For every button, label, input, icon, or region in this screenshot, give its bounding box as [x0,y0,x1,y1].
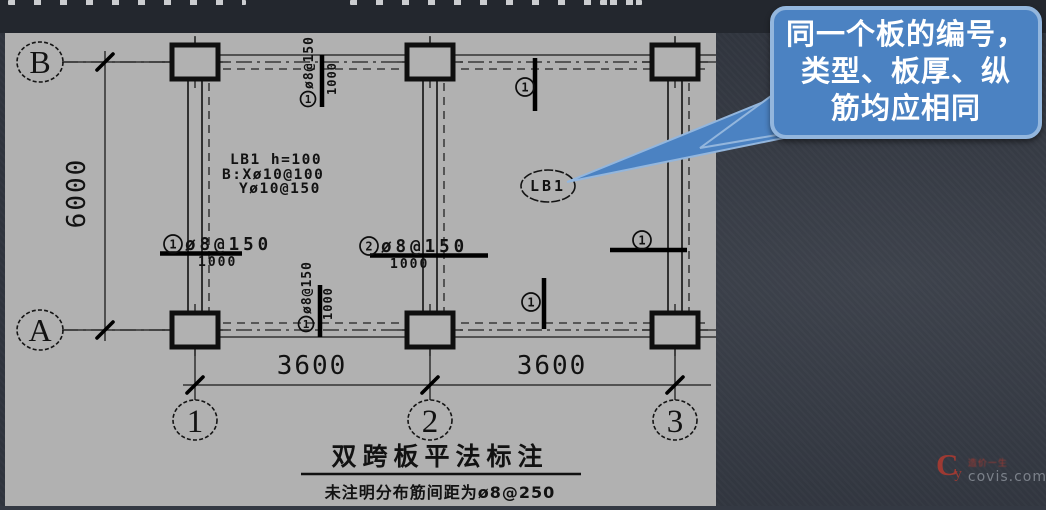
caption-block: 双跨板平法标注 未注明分布筋间距为ø8@250 [301,442,581,502]
mark-bottom-right: 1 [527,296,534,310]
rebar-top-spec: ø8@150 [302,36,317,89]
rebar-left-spec: ø8@150 [185,235,272,255]
rebar-middle-mark: 2 [365,240,372,254]
horizontal-dimension: 3600 3600 [183,351,711,393]
rebar-top-mark: 1 [305,93,312,106]
rebar-top-extent: 1000 [325,62,339,95]
rebar-bottom-mark: 1 [303,318,310,331]
rebar-annotation-bottom-span: 1 ø8@150 1000 [299,261,336,331]
axis-bubble-1: 1 [187,404,204,440]
rebar-left-mark: 1 [169,238,176,252]
axis-bubble-2: 2 [422,404,439,440]
dim-horizontal-right-label: 3600 [517,351,588,381]
slab-tag: LB1 [521,170,575,202]
drawing-panel: 6000 3600 3600 1 ø8@150 1000 2 ø8@150 10… [5,33,716,506]
watermark-tagline: 造价一生 [968,456,1046,469]
watermark: C y 造价一生 covis.com [936,450,1046,485]
rebar-middle-extent: 1000 [390,257,429,272]
slab-tag-label: LB1 [530,177,566,195]
axis-bubble-b: B [29,44,50,80]
dim-horizontal-left-label: 3600 [277,351,348,381]
watermark-site: covis.com [968,469,1046,485]
rebar-bottom-extent: 1000 [321,287,335,320]
axis-bubbles: B A 1 2 3 [17,42,697,440]
rebar-middle-spec: ø8@150 [381,237,468,257]
watermark-logo-y: y [954,466,962,483]
axis-bubble-a: A [28,312,51,348]
slab-annotation-line1: LB1 h=100 [230,152,322,168]
dim-vertical-label: 6000 [62,158,92,229]
axis-bubble-3: 3 [667,404,684,440]
callout-bubble: 同一个板的编号， 类型、板厚、纵 筋均应相同 [770,6,1042,139]
rebar-left-extent: 1000 [198,255,237,270]
slab-annotation-line3: Yø10@150 [239,181,321,197]
callout-text-line-3: 筋均应相同 [776,90,1036,127]
cropped-text-fragments [8,0,246,5]
slab-annotation-block: LB1 h=100 B:Xø10@100 Yø10@150 [222,152,324,197]
drawing-note: 未注明分布筋间距为ø8@250 [324,483,556,502]
drawing-title: 双跨板平法标注 [331,442,548,471]
grid-lines [62,37,716,400]
cropped-text-fragments [600,0,646,5]
cropped-text-fragments [350,0,642,5]
structural-plan-svg: 6000 3600 3600 1 ø8@150 1000 2 ø8@150 10… [5,33,716,506]
mark-top-right: 1 [521,81,528,95]
mark-right-span: 1 [638,234,645,248]
rebar-bottom-spec: ø8@150 [300,261,315,314]
callout-text-line-2: 类型、板厚、纵 [776,53,1036,90]
vertical-dimension: 6000 [62,51,113,341]
callout-text-line-1: 同一个板的编号， [776,16,1036,53]
